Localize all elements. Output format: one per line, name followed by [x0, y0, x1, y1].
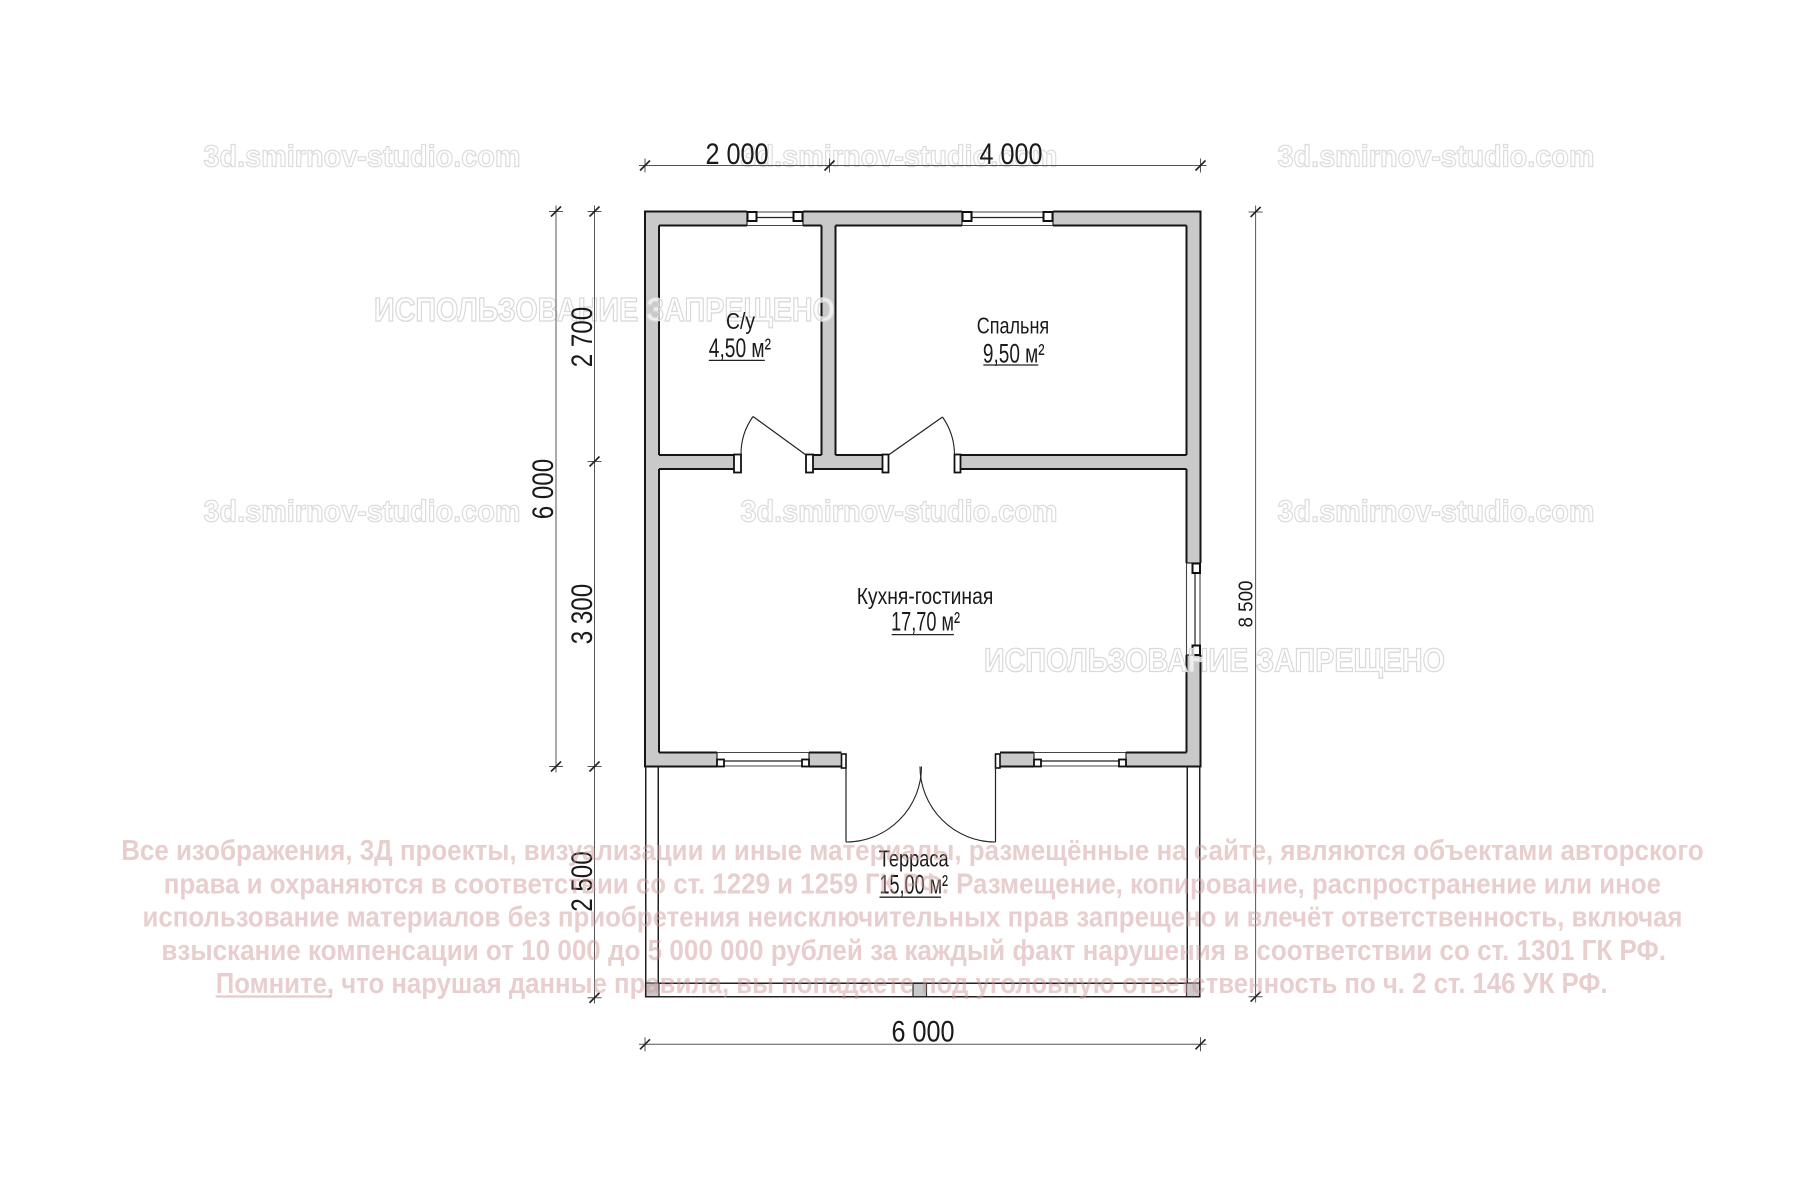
svg-text:Помните, что нарушая данные пр: Помните, что нарушая данные правила, вы … — [216, 968, 1608, 1000]
svg-text:6 000: 6 000 — [527, 459, 560, 520]
svg-text:4,50 м²: 4,50 м² — [709, 333, 771, 363]
svg-text:ИСПОЛЬЗОВАНИЕ ЗАПРЕЩЕНО: ИСПОЛЬЗОВАНИЕ ЗАПРЕЩЕНО — [374, 292, 835, 329]
svg-text:3d.smirnov-studio.com: 3d.smirnov-studio.com — [204, 139, 521, 174]
svg-text:использование материалов без п: использование материалов без приобретени… — [143, 902, 1683, 934]
svg-text:3d.smirnov-studio.com: 3d.smirnov-studio.com — [1278, 494, 1595, 529]
svg-text:права и охраняются в соответст: права и охраняются в соответствии со ст.… — [164, 868, 1661, 900]
svg-text:С/у: С/у — [726, 308, 755, 334]
svg-text:Кухня-гостиная: Кухня-гостиная — [857, 583, 994, 609]
svg-text:Спальня: Спальня — [977, 312, 1049, 338]
svg-text:2 000: 2 000 — [706, 138, 769, 171]
svg-text:3d.smirnov-studio.com: 3d.smirnov-studio.com — [741, 494, 1058, 529]
svg-text:взыскание компенсации от 10 00: взыскание компенсации от 10 000 до 5 000… — [161, 935, 1666, 967]
svg-text:3 300: 3 300 — [566, 584, 599, 645]
svg-text:3d.smirnov-studio.com: 3d.smirnov-studio.com — [204, 494, 521, 529]
svg-text:17,70 м²: 17,70 м² — [891, 607, 960, 637]
svg-text:2 700: 2 700 — [566, 307, 599, 368]
svg-text:3d.smirnov-studio.com: 3d.smirnov-studio.com — [1278, 139, 1595, 174]
svg-text:4 000: 4 000 — [980, 138, 1043, 171]
svg-text:ИСПОЛЬЗОВАНИЕ ЗАПРЕЩЕНО: ИСПОЛЬЗОВАНИЕ ЗАПРЕЩЕНО — [984, 643, 1445, 680]
svg-text:6 000: 6 000 — [892, 1016, 955, 1049]
svg-text:Все изображения, 3Д проекты, в: Все изображения, 3Д проекты, визуализаци… — [121, 835, 1704, 867]
svg-text:8 500: 8 500 — [1236, 581, 1258, 628]
svg-text:9,50 м²: 9,50 м² — [983, 339, 1045, 369]
